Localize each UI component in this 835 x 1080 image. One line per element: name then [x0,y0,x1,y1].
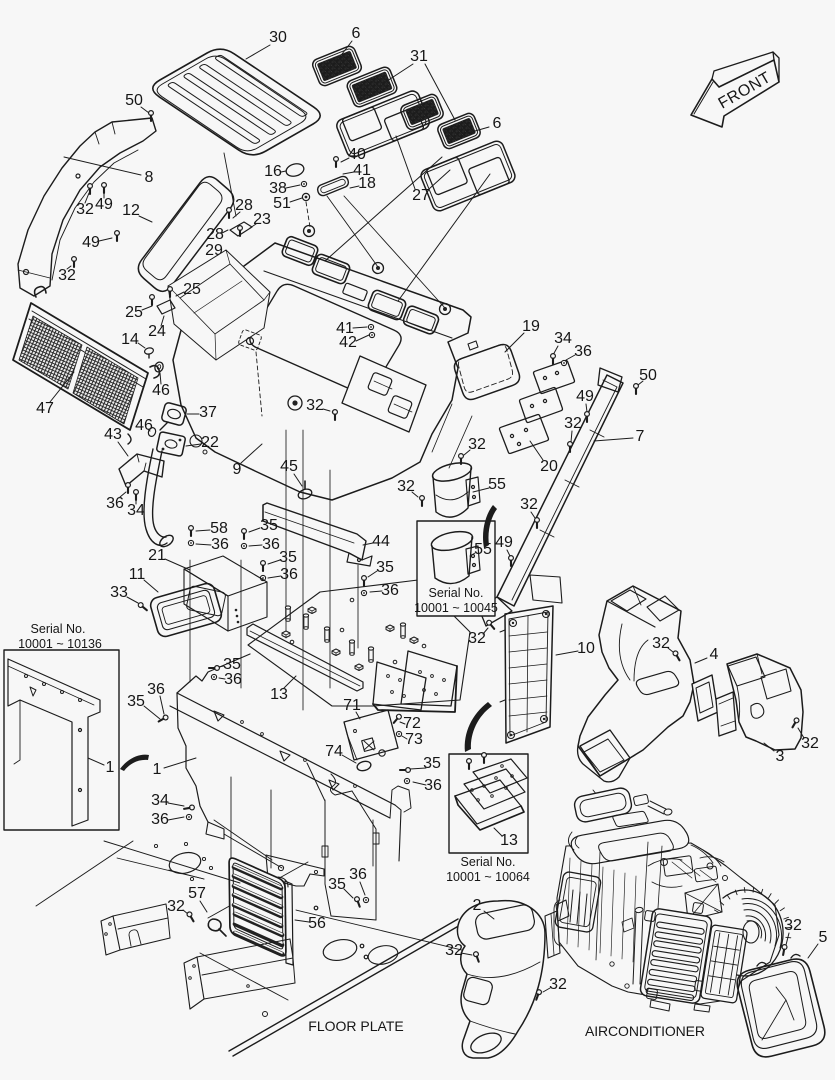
svg-text:8: 8 [145,169,154,186]
svg-text:55: 55 [474,541,492,558]
svg-text:45: 45 [280,458,298,475]
svg-text:28: 28 [235,197,253,214]
svg-text:49: 49 [495,534,513,551]
svg-text:37: 37 [199,404,217,421]
svg-text:18: 18 [358,175,376,192]
svg-text:FLOOR PLATE: FLOOR PLATE [308,1018,403,1034]
svg-text:31: 31 [410,48,428,65]
svg-text:71: 71 [343,697,361,714]
svg-text:12: 12 [122,202,140,219]
svg-text:16: 16 [264,163,282,180]
svg-text:46: 46 [135,417,153,434]
svg-text:3: 3 [776,748,785,765]
svg-text:72: 72 [403,715,421,732]
svg-text:1: 1 [153,761,162,778]
svg-text:22: 22 [201,434,219,451]
svg-text:24: 24 [148,323,166,340]
svg-text:27: 27 [412,187,430,204]
svg-text:13: 13 [270,686,288,703]
svg-text:32: 32 [167,898,185,915]
svg-text:11: 11 [129,566,146,583]
svg-text:1: 1 [106,759,115,776]
svg-text:6: 6 [493,115,502,132]
svg-text:AIRCONDITIONER: AIRCONDITIONER [585,1023,705,1039]
svg-text:49: 49 [576,388,594,405]
svg-text:19: 19 [522,318,540,335]
svg-text:6: 6 [352,25,361,42]
svg-text:32: 32 [445,942,463,959]
svg-text:32: 32 [549,976,567,993]
svg-text:32: 32 [306,397,324,414]
svg-text:36: 36 [574,343,592,360]
svg-text:36: 36 [349,866,367,883]
svg-text:36: 36 [151,811,169,828]
svg-text:13: 13 [500,832,518,849]
svg-text:32: 32 [58,267,76,284]
svg-text:32: 32 [520,496,538,513]
svg-text:36: 36 [280,566,298,583]
svg-text:57: 57 [188,885,206,902]
svg-text:47: 47 [36,400,54,417]
svg-text:7: 7 [636,428,645,445]
svg-text:34: 34 [127,502,145,519]
svg-text:34: 34 [151,792,169,809]
svg-text:49: 49 [95,196,113,213]
svg-text:55: 55 [488,476,506,493]
svg-text:56: 56 [308,915,326,932]
svg-text:49: 49 [82,234,100,251]
svg-text:51: 51 [273,195,291,212]
svg-text:36: 36 [424,777,442,794]
svg-text:46: 46 [152,382,170,399]
svg-text:25: 25 [183,281,201,298]
svg-text:35: 35 [279,549,297,566]
svg-text:36: 36 [381,582,399,599]
svg-text:36: 36 [211,536,229,553]
svg-text:73: 73 [405,731,423,748]
svg-text:Serial No.: Serial No. [31,622,86,636]
svg-text:34: 34 [554,330,572,347]
svg-text:36: 36 [106,495,124,512]
svg-text:33: 33 [110,584,128,601]
svg-text:32: 32 [784,917,802,934]
svg-text:4: 4 [710,646,719,663]
svg-text:20: 20 [540,458,558,475]
svg-text:10: 10 [577,640,595,657]
svg-text:Serial No.: Serial No. [461,855,516,869]
svg-text:44: 44 [372,533,390,550]
svg-text:35: 35 [328,876,346,893]
svg-text:74: 74 [325,743,343,760]
svg-text:25: 25 [125,304,143,321]
svg-text:32: 32 [468,630,486,647]
svg-text:10001 ~ 10045: 10001 ~ 10045 [414,601,498,615]
svg-text:50: 50 [125,92,143,109]
svg-text:32: 32 [564,415,582,432]
svg-text:42: 42 [339,334,357,351]
svg-text:40: 40 [348,146,366,163]
svg-text:35: 35 [376,559,394,576]
svg-text:9: 9 [233,461,242,478]
svg-text:36: 36 [147,681,165,698]
svg-text:23: 23 [253,211,271,228]
svg-text:28: 28 [206,226,224,243]
svg-text:10001 ~ 10064: 10001 ~ 10064 [446,870,530,884]
svg-text:32: 32 [468,436,486,453]
svg-text:5: 5 [819,929,828,946]
svg-text:35: 35 [423,755,441,772]
svg-text:Serial No.: Serial No. [429,586,484,600]
svg-text:36: 36 [224,671,242,688]
svg-text:35: 35 [127,693,145,710]
svg-text:32: 32 [76,201,94,218]
svg-text:36: 36 [262,536,280,553]
svg-text:10001 ~ 10136: 10001 ~ 10136 [18,637,102,651]
svg-text:32: 32 [652,635,670,652]
svg-text:2: 2 [473,897,482,914]
svg-text:14: 14 [121,331,139,348]
svg-text:21: 21 [148,547,166,564]
svg-text:30: 30 [269,29,287,46]
svg-text:43: 43 [104,426,122,443]
svg-text:35: 35 [260,517,278,534]
svg-text:58: 58 [210,520,228,537]
